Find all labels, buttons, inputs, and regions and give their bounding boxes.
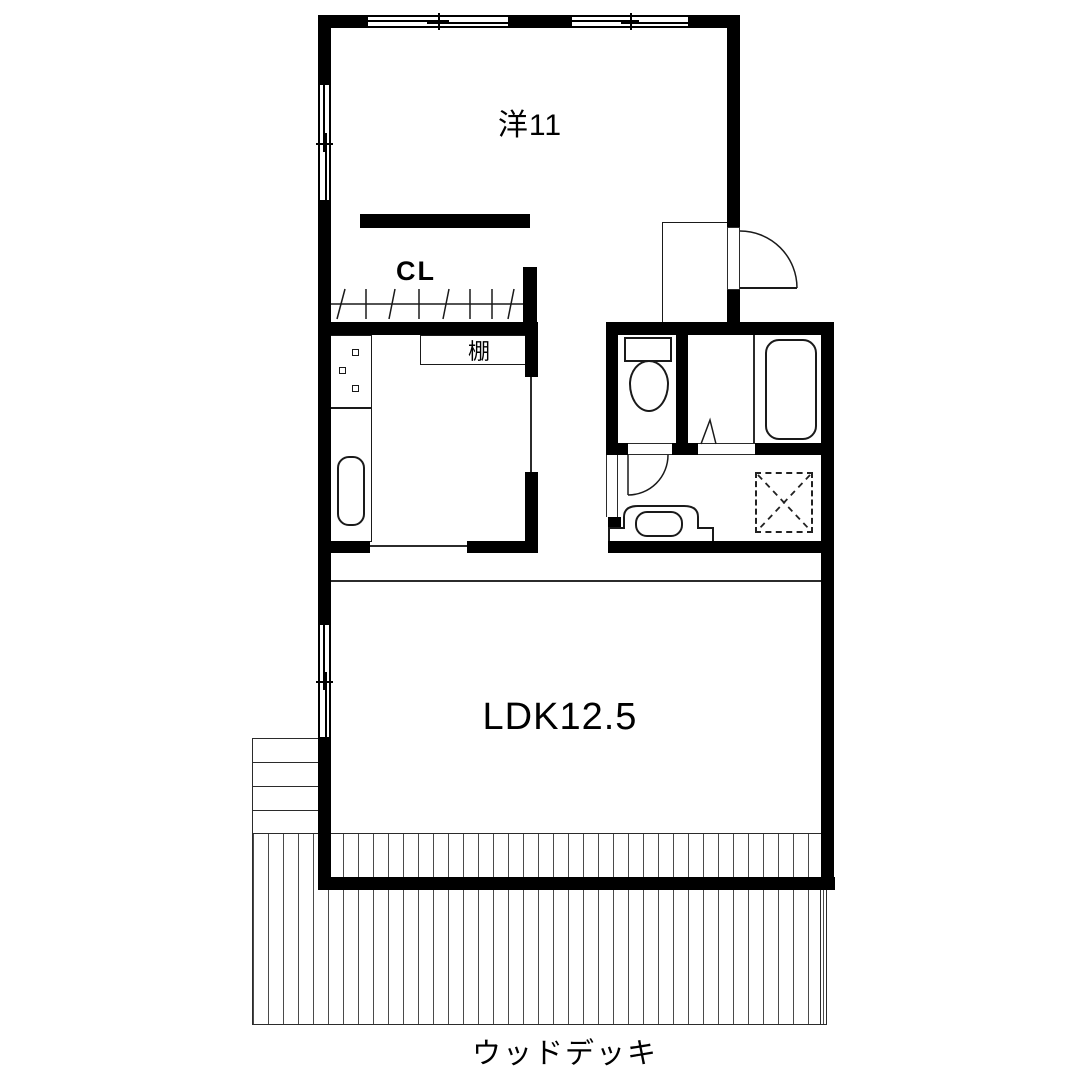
bathroom-folding-door-mark bbox=[701, 420, 716, 444]
western-room-label: 洋11 bbox=[450, 100, 610, 144]
wood-deck-label: ウッドデッキ bbox=[405, 1030, 725, 1072]
linework-overlay bbox=[0, 0, 1080, 1080]
ldk-label: LDK12.5 bbox=[420, 696, 700, 739]
floor-plan: 棚 洋11 CL LDK12.5 ウッド bbox=[0, 0, 1080, 1080]
closet-label: CL bbox=[386, 256, 446, 287]
toilet-door-arc bbox=[628, 455, 668, 495]
entry-door-arc bbox=[740, 231, 797, 288]
